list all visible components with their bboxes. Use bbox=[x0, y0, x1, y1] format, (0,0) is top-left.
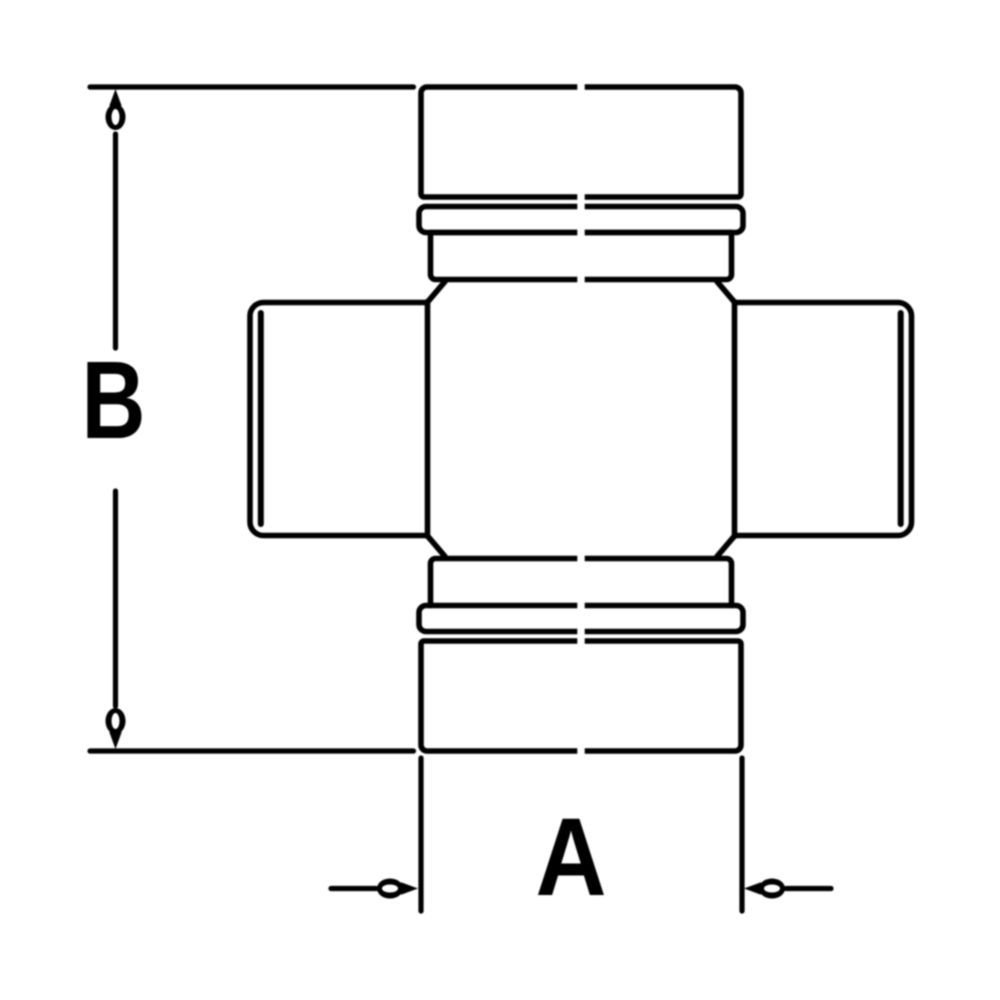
svg-text:A: A bbox=[536, 796, 607, 919]
svg-text:B: B bbox=[82, 339, 146, 462]
